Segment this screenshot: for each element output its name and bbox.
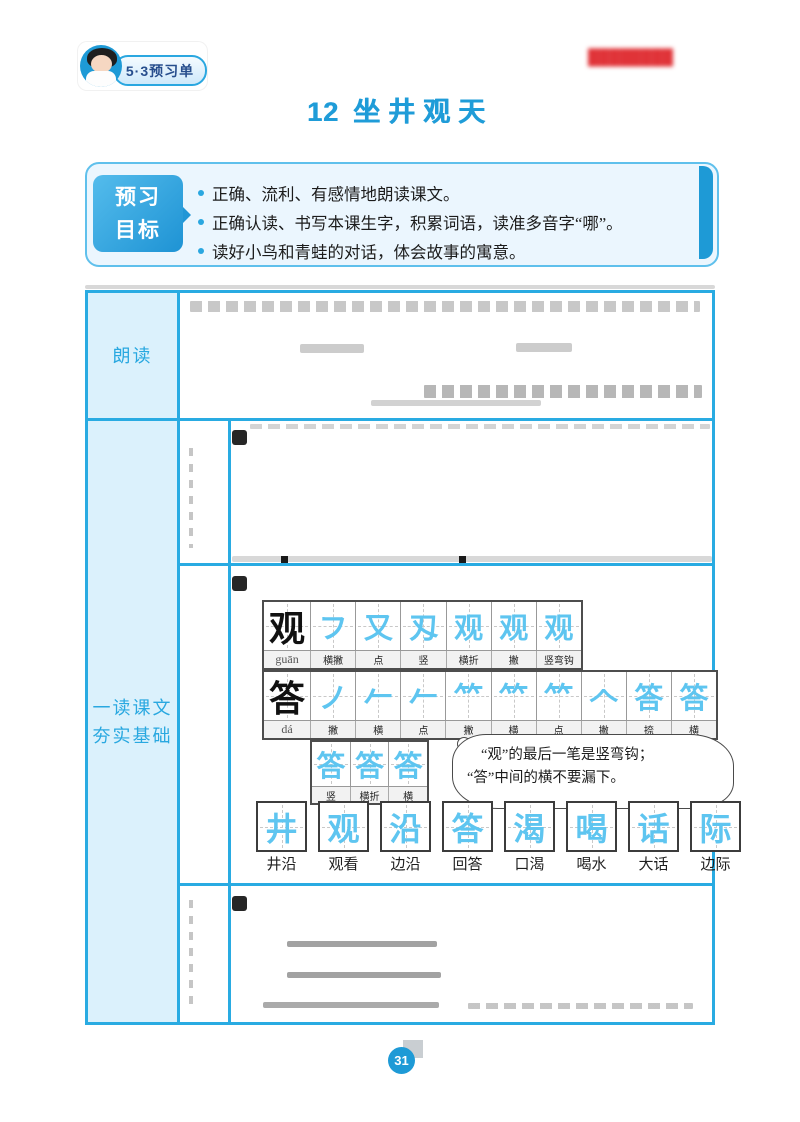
practice-word: 大话 — [628, 853, 679, 874]
subcolumn-divider — [228, 418, 231, 1025]
stroke-name: 点 — [356, 651, 401, 668]
practice-char-row: 井 观 沿 答 渴 喝 话 际 — [256, 801, 741, 852]
stroke-stage-cell: 答 — [627, 672, 672, 721]
goals-tab: 预习 目标 — [93, 175, 183, 252]
redacted-text-line — [424, 385, 702, 398]
stroke-stage: 答 — [634, 675, 663, 717]
red-watermark-text: ████████ — [588, 49, 718, 66]
row-divider — [85, 418, 715, 421]
redacted-mark — [300, 344, 364, 353]
series-badge-label: 5·3预习单 — [113, 55, 207, 86]
stroke-stage-cell: 观 — [447, 602, 492, 651]
practice-char: 沿 — [389, 804, 421, 850]
practice-char: 观 — [327, 804, 359, 850]
stroke-stage: 𥫗 — [454, 675, 483, 717]
section-marker-icon — [232, 430, 247, 445]
stroke-order-table-da-continued: 答 答 答 竖 横折 横 — [310, 740, 429, 805]
practice-word: 回答 — [442, 853, 493, 874]
bullet-icon — [198, 219, 204, 225]
worksheet-page: 5·3预习单 ████████ 12坐井观天 预习 目标 正确、流利、有感情地朗… — [0, 0, 800, 1122]
pinyin-label: dá — [264, 721, 311, 738]
tip-line2: “答”中间的横不要漏下。 — [467, 767, 723, 790]
stroke-stage-cell: 答 — [312, 742, 351, 787]
stroke-stage-cell: フ — [311, 602, 356, 651]
stroke-stage-cell: 观 — [492, 602, 537, 651]
stroke-name: 竖 — [401, 651, 446, 668]
pinyin-label: guān — [264, 651, 311, 668]
char-da: 答 — [269, 670, 305, 722]
stroke-stage: 答 — [316, 743, 345, 785]
practice-char-box: 渴 — [504, 801, 555, 852]
stroke-stage-cell: 答 — [672, 672, 716, 721]
section-marker-icon — [232, 576, 247, 591]
tip-bubble: “观”的最后一笔是竖弯钩； “答”中间的横不要漏下。 — [452, 734, 734, 809]
stroke-stage: 𥫗 — [544, 675, 573, 717]
subrow-divider — [177, 883, 715, 886]
redacted-vertical-text — [189, 900, 193, 1008]
redacted-mark — [232, 556, 712, 562]
stroke-name: 横折 — [447, 651, 492, 668]
stroke-name: 撇 — [311, 721, 356, 738]
stroke-stage: 又 — [364, 605, 393, 647]
page-title: 12坐井观天 — [0, 90, 800, 129]
practice-word: 边际 — [690, 853, 741, 874]
row-label-read-aloud: 朗读 — [88, 293, 177, 418]
redacted-line — [287, 972, 441, 978]
practice-word: 观看 — [318, 853, 369, 874]
practice-word: 边沿 — [380, 853, 431, 874]
practice-char-box: 沿 — [380, 801, 431, 852]
practice-char: 渴 — [513, 804, 545, 850]
redacted-line — [287, 941, 437, 947]
goal-item: 读好小鸟和青蛙的对话，体会故事的寓意。 — [212, 239, 707, 263]
stroke-glyph-row: 答 答 答 — [312, 742, 427, 787]
stroke-stage: 𥫗 — [499, 675, 528, 717]
stroke-stage-cell: 𥫗 — [446, 672, 491, 721]
label-column-divider — [177, 290, 180, 1025]
table-border-right — [712, 290, 715, 1025]
redacted-text-line — [468, 1003, 693, 1009]
row-label-line2: 夯实基础 — [93, 722, 173, 750]
stroke-label-row: guān 横撇 点 竖 横折 撇 竖弯钩 — [264, 651, 581, 668]
stroke-stage: ノ — [319, 675, 348, 717]
redacted-mark — [85, 285, 715, 289]
practice-char: 际 — [699, 804, 731, 850]
stroke-stage-cell: 又 — [356, 602, 401, 651]
practice-char: 答 — [451, 804, 483, 850]
page-number-badge: 31 — [388, 1047, 415, 1074]
stroke-stage: 𠆢 — [589, 675, 618, 717]
stroke-stage-cell: 答 — [351, 742, 390, 787]
practice-char-box: 话 — [628, 801, 679, 852]
stroke-stage-cell: 𠆢 — [582, 672, 627, 721]
stroke-stage-cell: 答 — [389, 742, 427, 787]
tip-line1: “观”的最后一笔是竖弯钩； — [467, 744, 723, 767]
stroke-stage-cell: 𠂉 — [401, 672, 446, 721]
stroke-stage: 答 — [679, 675, 708, 717]
redacted-mark — [281, 556, 288, 563]
stroke-stage: 𠂉 — [364, 675, 393, 717]
practice-char-box: 观 — [318, 801, 369, 852]
stroke-stage: フ — [319, 605, 348, 647]
stroke-order-table-da: 答 ノ 𠂉 𠂉 𥫗 𥫗 𥫗 𠆢 答 答 dá 撇 横 点 撇 横 点 撇 捺 横 — [262, 670, 718, 740]
row-label-first-reading: 一读课文 夯实基础 — [88, 421, 177, 1022]
char-guan: 观 — [269, 600, 305, 652]
bullet-icon — [198, 248, 204, 254]
stroke-name: 横 — [356, 721, 401, 738]
redacted-mark — [516, 343, 572, 352]
practice-char-box: 际 — [690, 801, 741, 852]
goal-item: 正确、流利、有感情地朗读课文。 — [212, 181, 707, 205]
stroke-stage-cell: 𥫗 — [492, 672, 537, 721]
stroke-stage-cell: 刄 — [401, 602, 446, 651]
section-marker-icon — [232, 896, 247, 911]
stroke-stage: 刄 — [409, 605, 438, 647]
bullet-icon — [198, 190, 204, 196]
practice-word-row: 井沿 观看 边沿 回答 口渴 喝水 大话 边际 — [256, 853, 741, 874]
practice-char-box: 答 — [442, 801, 493, 852]
practice-char-box: 喝 — [566, 801, 617, 852]
redacted-vertical-text — [189, 448, 193, 548]
stroke-name: 竖弯钩 — [537, 651, 581, 668]
stroke-stage-cell: 𥫗 — [537, 672, 582, 721]
redacted-text-line — [250, 424, 710, 429]
lesson-number: 12 — [307, 97, 339, 127]
stroke-glyph-row: 观 フ 又 刄 观 观 观 — [264, 602, 581, 651]
stroke-stage-cell: 𠂉 — [356, 672, 401, 721]
stroke-stage-cell: ノ — [311, 672, 356, 721]
redacted-text-line — [190, 301, 700, 312]
stroke-stage: 观 — [454, 605, 483, 647]
stroke-order-table-guan: 观 フ 又 刄 观 观 观 guān 横撇 点 竖 横折 撇 竖弯钩 — [262, 600, 583, 670]
stroke-stage-cell: 观 — [537, 602, 581, 651]
char-cell: 答 — [264, 672, 311, 721]
practice-char: 话 — [637, 804, 669, 850]
stroke-stage: 答 — [394, 743, 423, 785]
practice-word: 喝水 — [566, 853, 617, 874]
goals-tab-line1: 预习 — [115, 181, 161, 214]
boy-avatar-icon — [80, 45, 122, 87]
stroke-name: 撇 — [492, 651, 537, 668]
practice-char-box: 井 — [256, 801, 307, 852]
goal-item: 正确认读、书写本课生字，积累词语，读准多音字“哪”。 — [212, 210, 707, 234]
stroke-stage: 观 — [499, 605, 528, 647]
stroke-stage: 答 — [355, 743, 384, 785]
redacted-line — [263, 1002, 439, 1008]
lesson-title: 坐井观天 — [353, 97, 493, 127]
practice-word: 口渴 — [504, 853, 555, 874]
redacted-mark — [459, 556, 466, 563]
stroke-name: 点 — [401, 721, 446, 738]
avatar-shirt — [86, 71, 116, 87]
stroke-glyph-row: 答 ノ 𠂉 𠂉 𥫗 𥫗 𥫗 𠆢 答 答 — [264, 672, 716, 721]
stroke-stage: 观 — [544, 605, 573, 647]
goals-tab-line2: 目标 — [115, 214, 161, 247]
subrow-divider — [177, 563, 715, 566]
stroke-stage: 𠂉 — [409, 675, 438, 717]
practice-word: 井沿 — [256, 853, 307, 874]
stroke-name: 横撇 — [311, 651, 356, 668]
practice-char: 井 — [265, 804, 297, 850]
row-label-line1: 一读课文 — [93, 694, 173, 722]
char-cell: 观 — [264, 602, 311, 651]
redacted-mark — [371, 400, 541, 406]
practice-char: 喝 — [575, 804, 607, 850]
